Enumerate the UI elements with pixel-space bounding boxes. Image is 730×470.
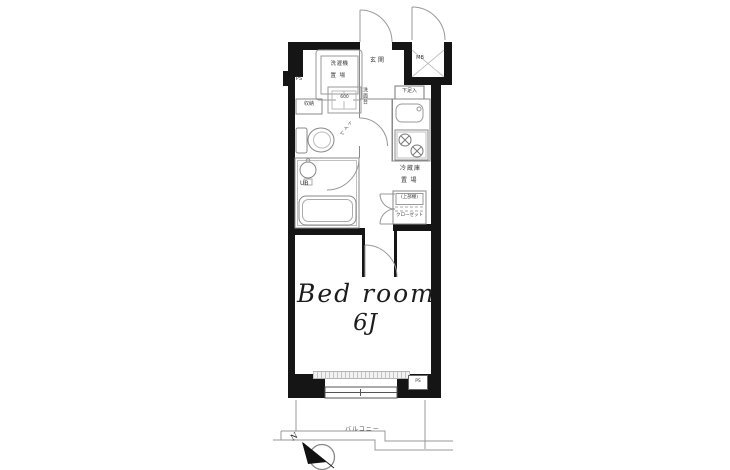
fridge-label-line1: 冷蔵庫 xyxy=(392,166,429,172)
shoe-cabinet-label: 下足入 xyxy=(396,89,423,94)
balcony-outline xyxy=(273,400,453,450)
washer-label-line2: 置場 xyxy=(322,74,357,80)
pipe-space-bottom-label: PS xyxy=(408,375,428,390)
bathtub-icon xyxy=(299,159,356,225)
entrance-label: 玄関 xyxy=(364,58,392,64)
bedroom-name-label: Bed room xyxy=(297,281,433,306)
closet-label: クローゼット xyxy=(393,214,426,219)
window-lintel-hatch xyxy=(313,371,410,379)
mb-door-arc xyxy=(412,7,445,40)
fridge-label-line2: 置場 xyxy=(392,178,429,184)
entrance-door-arc xyxy=(360,10,392,42)
floorplan-image: PS 洗濯機 置場 玄関 MB 収納 600 洗面台 トイレ 下足入 UB 冷蔵… xyxy=(0,0,730,470)
floorplan-linework xyxy=(0,0,730,470)
washer-label-line1: 洗濯機 xyxy=(322,62,357,68)
balcony-label: バルコニー xyxy=(340,427,385,433)
storage-label: 収納 xyxy=(297,102,321,107)
unit-bath-label: UB xyxy=(300,181,309,187)
vanity-width-label: 600 xyxy=(336,96,353,101)
upper-shelf-label: (上部棚) xyxy=(395,196,424,201)
vanity-label: 洗面台 xyxy=(362,87,367,115)
toilet-icon xyxy=(296,128,334,153)
compass-icon xyxy=(302,442,335,470)
window-icon xyxy=(325,387,397,398)
meter-box-label: MB xyxy=(412,56,428,61)
kitchen-icon xyxy=(392,99,430,161)
pipe-space-top-label: PS xyxy=(291,77,307,82)
bedroom-door-arc xyxy=(365,245,397,277)
bath-door-arc xyxy=(327,158,359,190)
bath-sink-icon xyxy=(300,162,316,178)
bedroom-size-label: 6J xyxy=(297,312,433,335)
washroom-door-arc xyxy=(360,118,388,146)
